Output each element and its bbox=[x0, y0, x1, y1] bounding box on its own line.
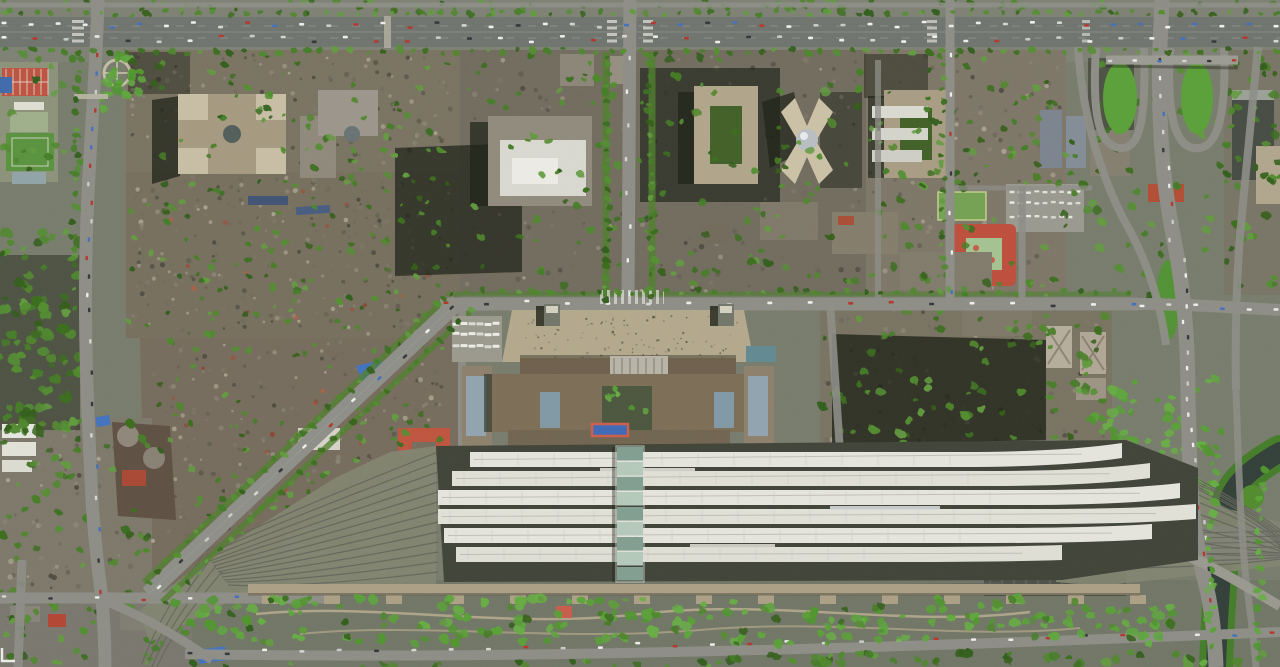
satellite-map-canvas[interactable] bbox=[0, 0, 1280, 667]
satellite-image bbox=[0, 0, 1280, 667]
atmospheric-haze bbox=[0, 0, 1280, 667]
